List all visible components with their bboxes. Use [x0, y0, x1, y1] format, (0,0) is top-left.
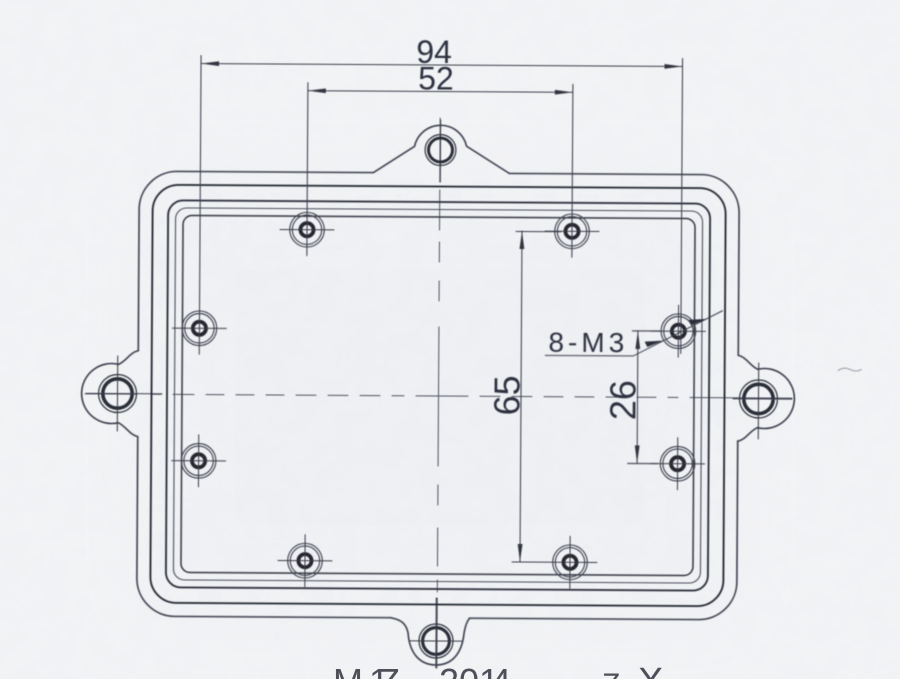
svg-text:26: 26	[602, 380, 643, 420]
svg-text:65: 65	[486, 375, 527, 415]
svg-text:52: 52	[418, 60, 454, 96]
svg-text:8-M3: 8-M3	[548, 327, 628, 358]
